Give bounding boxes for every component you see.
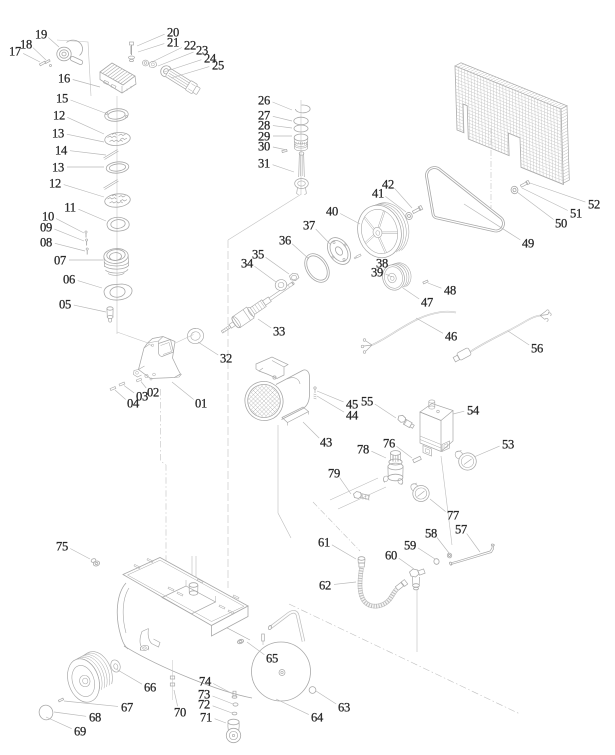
svg-text:33: 33: [273, 325, 285, 339]
svg-text:58: 58: [425, 527, 437, 541]
svg-text:39: 39: [371, 266, 383, 280]
svg-text:07: 07: [54, 254, 66, 268]
svg-text:36: 36: [279, 234, 291, 248]
svg-text:43: 43: [320, 436, 332, 450]
svg-text:06: 06: [63, 273, 75, 287]
svg-text:53: 53: [502, 438, 514, 452]
svg-text:13: 13: [52, 161, 64, 175]
svg-text:19: 19: [35, 28, 47, 42]
svg-text:52: 52: [588, 198, 600, 212]
svg-text:05: 05: [59, 298, 71, 312]
svg-text:48: 48: [444, 284, 456, 298]
svg-text:01: 01: [195, 397, 207, 411]
svg-text:15: 15: [56, 92, 68, 106]
svg-text:64: 64: [311, 711, 324, 725]
svg-text:18: 18: [20, 38, 32, 52]
svg-text:14: 14: [55, 144, 68, 158]
svg-text:69: 69: [74, 725, 86, 739]
svg-text:22: 22: [184, 39, 196, 53]
svg-text:04: 04: [127, 397, 140, 411]
svg-text:79: 79: [328, 467, 340, 481]
svg-text:49: 49: [522, 237, 534, 251]
svg-text:42: 42: [382, 178, 394, 192]
svg-text:40: 40: [326, 205, 338, 219]
svg-text:31: 31: [258, 157, 270, 171]
svg-text:30: 30: [258, 140, 270, 154]
svg-text:57: 57: [455, 523, 467, 537]
svg-text:74: 74: [199, 675, 212, 689]
svg-text:16: 16: [58, 72, 70, 86]
svg-text:75: 75: [56, 540, 68, 554]
svg-text:50: 50: [555, 217, 567, 231]
svg-text:51: 51: [570, 207, 582, 221]
svg-text:25: 25: [212, 59, 224, 73]
svg-text:61: 61: [318, 536, 330, 550]
svg-text:73: 73: [198, 688, 210, 702]
svg-text:55: 55: [361, 395, 373, 409]
svg-text:78: 78: [357, 443, 369, 457]
svg-text:11: 11: [64, 201, 75, 215]
svg-text:21: 21: [167, 36, 179, 50]
svg-text:60: 60: [385, 549, 397, 563]
svg-text:77: 77: [447, 509, 459, 523]
svg-text:68: 68: [89, 711, 101, 725]
svg-text:70: 70: [174, 706, 186, 720]
svg-text:45: 45: [346, 398, 358, 412]
svg-text:37: 37: [303, 219, 315, 233]
svg-text:62: 62: [319, 579, 331, 593]
svg-text:12: 12: [53, 109, 65, 123]
svg-text:26: 26: [258, 94, 270, 108]
svg-text:13: 13: [52, 127, 64, 141]
svg-text:02: 02: [147, 386, 159, 400]
svg-text:09: 09: [40, 221, 52, 235]
svg-text:76: 76: [383, 437, 395, 451]
svg-text:67: 67: [121, 701, 133, 715]
svg-text:63: 63: [338, 701, 350, 715]
svg-text:54: 54: [467, 404, 480, 418]
svg-text:59: 59: [404, 539, 416, 553]
svg-text:65: 65: [266, 652, 278, 666]
svg-text:32: 32: [220, 352, 232, 366]
svg-text:66: 66: [144, 681, 156, 695]
svg-text:08: 08: [40, 236, 52, 250]
svg-text:12: 12: [49, 177, 61, 191]
svg-text:56: 56: [531, 342, 543, 356]
svg-text:35: 35: [252, 248, 264, 262]
svg-text:46: 46: [445, 330, 457, 344]
svg-text:47: 47: [421, 296, 433, 310]
svg-text:71: 71: [200, 711, 212, 725]
